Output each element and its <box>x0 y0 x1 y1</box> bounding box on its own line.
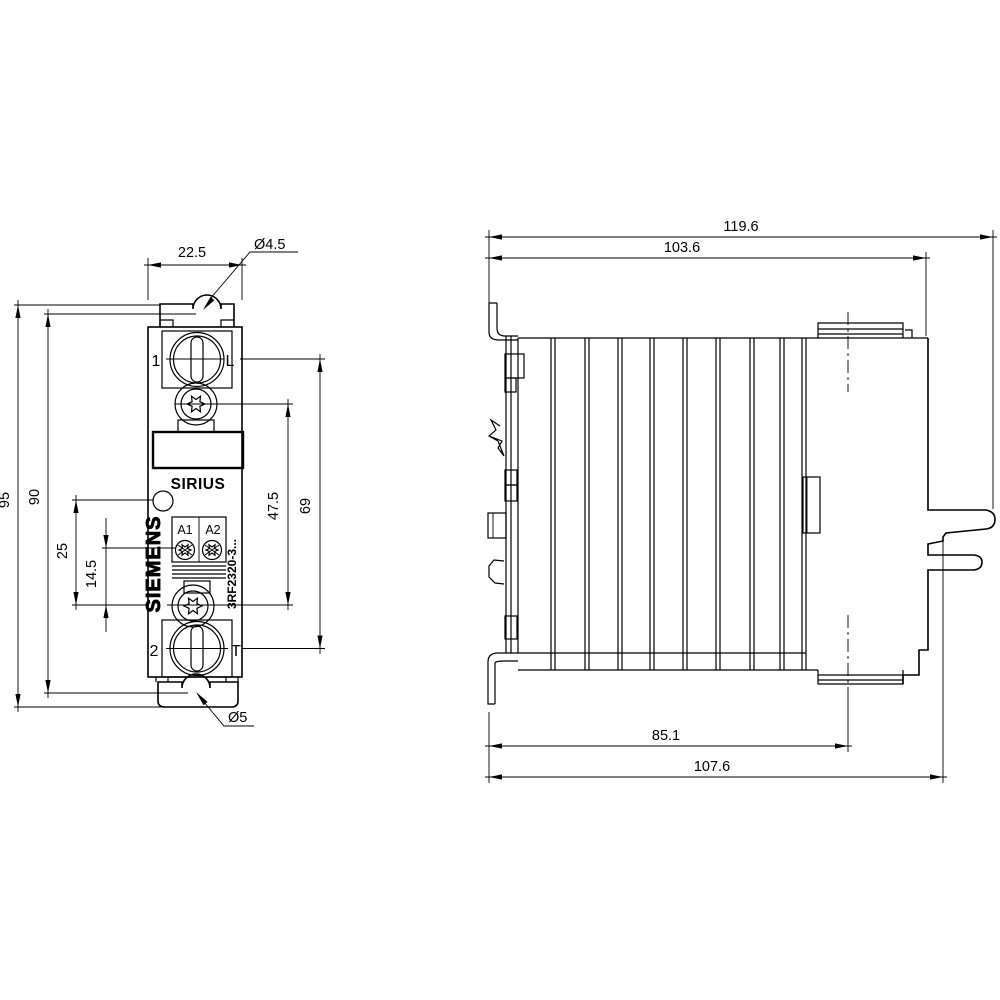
fin <box>683 338 687 670</box>
clip-slider <box>488 513 506 538</box>
brand-label: SIRIUS <box>171 476 226 493</box>
fin <box>551 338 555 670</box>
dim-bottom-slot: Ø5 <box>228 710 247 726</box>
arrowhead <box>15 694 20 707</box>
cover-plate <box>153 432 243 468</box>
fin <box>716 338 720 670</box>
arrowhead <box>913 255 926 260</box>
leader-arrow-bottom <box>196 692 208 705</box>
arrowhead <box>835 743 848 748</box>
arrowhead <box>73 592 78 605</box>
front-view: 1 L SIRIUS SIEMENS A1 A2 <box>143 295 243 707</box>
arrowhead <box>285 592 290 605</box>
arrowhead <box>489 255 502 260</box>
dimension-drawing: 1 L SIRIUS SIEMENS A1 A2 <box>0 0 1000 1000</box>
dim-width: 22.5 <box>178 245 206 261</box>
label-terminal-1: 1 <box>152 353 161 370</box>
status-led <box>153 491 173 511</box>
arrowhead <box>15 305 20 318</box>
heatsink-fins <box>551 338 806 670</box>
arrowhead <box>73 500 78 513</box>
clip-block-top <box>505 354 524 378</box>
clip-spring-top <box>489 420 504 456</box>
label-coil-a1: A1 <box>177 523 192 537</box>
arrowhead <box>317 359 322 372</box>
extension-lines-side <box>489 230 993 783</box>
torx-screw-bottom-ring <box>178 591 208 621</box>
arrowhead <box>285 404 290 417</box>
extension-lines-left <box>14 258 325 707</box>
top-tab-ears <box>160 320 234 327</box>
label-terminal-T: T <box>231 643 241 660</box>
torx-screw-bottom-star <box>184 598 202 614</box>
dim-terminal-pitch: 69 <box>298 498 314 514</box>
arrowhead <box>489 743 502 748</box>
terminal-screw-top-inner <box>174 336 221 383</box>
arrowhead <box>317 636 322 649</box>
fin <box>650 338 654 670</box>
cover-tab <box>178 420 214 432</box>
side-view <box>488 303 995 704</box>
leader-top-slot <box>210 252 298 299</box>
fin <box>780 338 784 670</box>
arrowhead <box>103 605 108 618</box>
coil-screw-a1 <box>176 541 195 560</box>
dimension-drawing-page: 1 L SIRIUS SIEMENS A1 A2 <box>0 0 1000 1000</box>
arrowhead <box>103 535 108 548</box>
dim-screw-pitch: 47.5 <box>266 492 282 520</box>
terminal-screw-top <box>170 333 224 387</box>
dim-led-to-screw: 25 <box>55 543 71 559</box>
terminal-block-top-side <box>818 323 912 338</box>
arrowhead <box>148 262 161 267</box>
arrowhead <box>489 774 502 779</box>
dim-overall-depth: 119.6 <box>723 219 758 235</box>
terminal-block-bottom-side <box>818 670 903 684</box>
arrowhead <box>45 680 50 693</box>
terminal-box-top <box>162 331 232 388</box>
dim-overall-height: 95 <box>0 492 13 508</box>
dim-body-depth: 103.6 <box>664 240 700 256</box>
terminal-screw-top-slot <box>191 337 203 382</box>
coil-screw-a2 <box>203 541 222 560</box>
fin <box>618 338 622 670</box>
bracket-top <box>489 303 518 340</box>
arrowhead <box>489 234 502 239</box>
dim-mounting-pitch: 90 <box>27 489 43 505</box>
label-terminal-2: 2 <box>150 643 159 660</box>
part-number-label: 3RF2320-3... <box>225 539 239 609</box>
label-coil-a2: A2 <box>205 523 220 537</box>
arrowhead <box>980 234 993 239</box>
vent-lines <box>172 566 226 578</box>
arrowhead <box>930 774 943 779</box>
bracket-bottom <box>488 653 518 704</box>
side-view-dimensions: 119.6 103.6 85.1 107.6 <box>485 219 997 783</box>
dim-mounting-depth: 107.6 <box>694 759 730 775</box>
heatsink-bottom-edge <box>518 653 818 670</box>
fin <box>585 338 589 670</box>
leader-arrow-top <box>203 297 214 310</box>
arrowhead <box>45 314 50 327</box>
fin <box>750 338 754 670</box>
clip-spring-bottom <box>489 560 504 584</box>
dim-coil-to-screw: 14.5 <box>84 560 100 588</box>
dim-rail-to-center: 85.1 <box>652 728 680 744</box>
dim-top-slot: Ø4.5 <box>254 237 285 253</box>
label-terminal-L: L <box>226 353 235 370</box>
manufacturer-label: SIEMENS <box>143 515 165 612</box>
front-face-profile <box>903 338 995 684</box>
top-mounting-tab <box>160 295 234 327</box>
